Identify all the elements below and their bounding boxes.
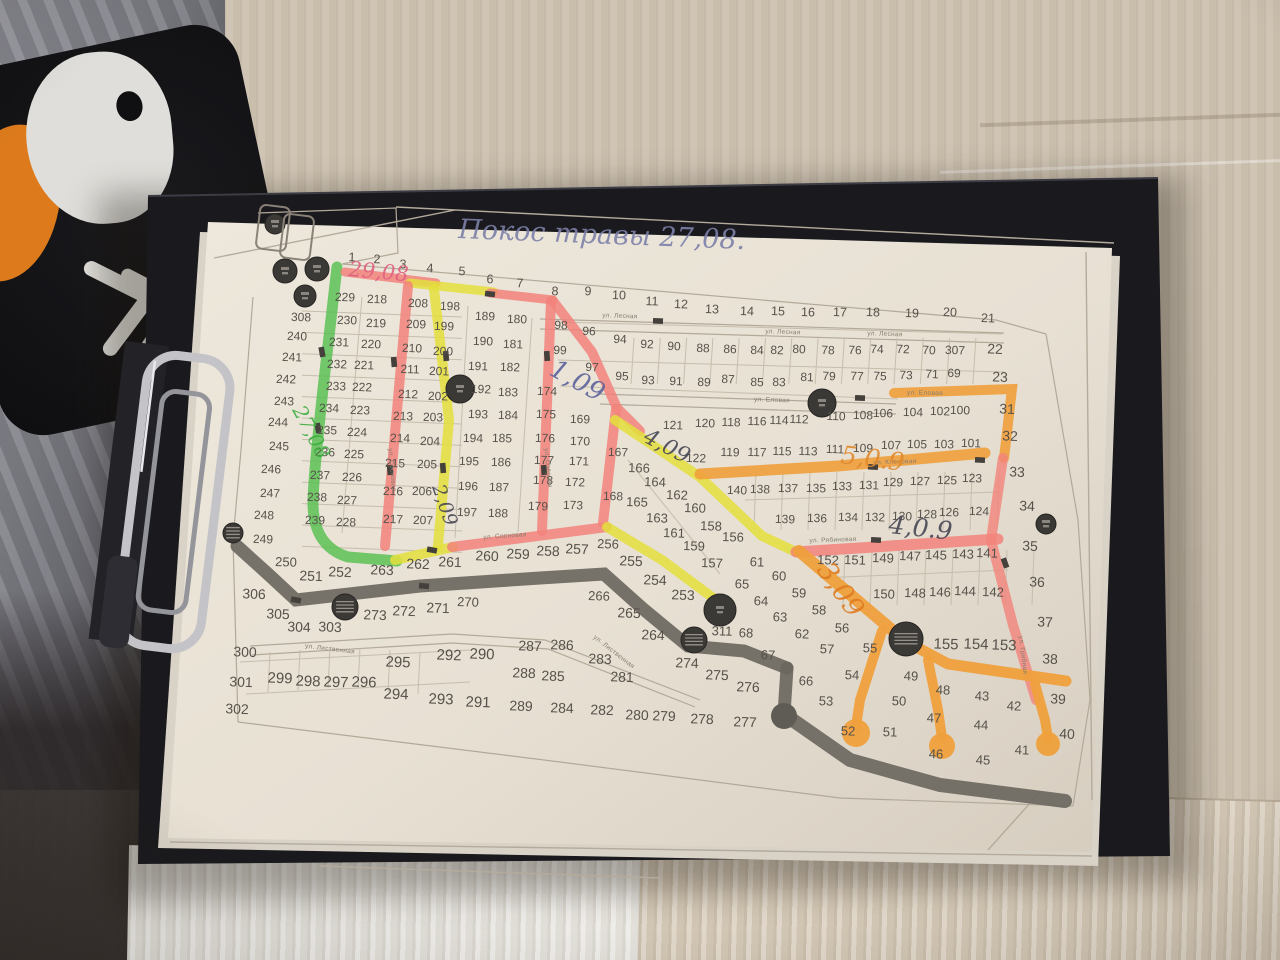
plot-number-202: 202: [428, 389, 449, 404]
plot-number-60: 60: [772, 568, 787, 583]
plot-number-161: 161: [663, 525, 685, 541]
plot-number-54: 54: [845, 667, 860, 682]
plot-number-159: 159: [683, 538, 705, 554]
plot-number-200: 200: [433, 344, 454, 359]
edge-number-38: 38: [1042, 650, 1058, 667]
plot-number-306: 306: [242, 585, 266, 602]
plot-number-46: 46: [929, 746, 944, 761]
plot-number-194: 194: [463, 431, 484, 446]
plot-number-223: 223: [350, 403, 371, 418]
plot-number-78: 78: [821, 343, 835, 357]
plot-number-42: 42: [1007, 698, 1022, 713]
plot-number-222: 222: [352, 380, 373, 395]
plot-number-108: 108: [853, 408, 874, 423]
plot-number-131: 131: [859, 478, 880, 493]
plot-number-266: 266: [588, 588, 610, 604]
plot-number-173: 173: [563, 498, 584, 513]
plot-number-254: 254: [643, 571, 667, 588]
plot-number-100: 100: [950, 403, 971, 418]
plot-number-188: 188: [488, 506, 509, 521]
plot-number-65: 65: [735, 576, 750, 591]
edge-number-36: 36: [1029, 573, 1045, 590]
route-end-blob: [1036, 732, 1060, 756]
edge-number-40: 40: [1059, 725, 1075, 742]
plot-number-203: 203: [423, 410, 444, 425]
plot-number-155: 155: [933, 636, 959, 654]
plot-number-66: 66: [799, 673, 814, 688]
gate-mark: [975, 457, 985, 463]
plot-number-160: 160: [684, 500, 706, 516]
edge-number-7: 7: [516, 276, 523, 290]
plot-number-233: 233: [326, 379, 347, 394]
plot-number-134: 134: [838, 510, 859, 525]
gate-mark: [653, 318, 663, 324]
plot-number-239: 239: [305, 513, 326, 528]
plot-number-113: 113: [798, 444, 818, 459]
plot-number-301: 301: [229, 673, 253, 690]
plot-number-80: 80: [792, 342, 806, 356]
plot-number-308: 308: [291, 310, 312, 325]
plot-number-311: 311: [711, 623, 732, 639]
plot-number-262: 262: [406, 555, 430, 572]
utility-icon: [704, 594, 736, 626]
edge-number-16: 16: [801, 305, 815, 319]
plot-number-195: 195: [459, 454, 480, 469]
plot-number-217: 217: [383, 512, 404, 527]
gate-mark: [419, 583, 429, 589]
plot-number-87: 87: [721, 372, 735, 386]
plot-number-299: 299: [267, 670, 293, 688]
plot-number-287: 287: [518, 637, 542, 654]
plot-number-144: 144: [954, 583, 976, 599]
plot-number-282: 282: [590, 701, 614, 718]
road-junction: [771, 703, 797, 729]
plot-number-288: 288: [512, 664, 536, 681]
plot-number-265: 265: [617, 604, 641, 621]
plot-number-59: 59: [792, 585, 807, 600]
plot-number-219: 219: [366, 316, 387, 331]
plot-number-120: 120: [695, 416, 716, 431]
edge-number-15: 15: [771, 304, 785, 318]
plot-number-286: 286: [550, 636, 574, 653]
plot-number-149: 149: [872, 550, 894, 566]
street-label: ул. Рябиновая: [809, 535, 857, 545]
plot-number-146: 146: [929, 584, 951, 600]
plot-number-117: 117: [747, 445, 767, 460]
plot-number-252: 252: [328, 563, 352, 580]
plot-number-307: 307: [945, 343, 966, 358]
edge-number-4: 4: [426, 261, 433, 275]
plot-number-241: 241: [282, 350, 303, 365]
plot-number-77: 77: [850, 369, 864, 383]
plot-number-151: 151: [844, 552, 866, 568]
plot-number-110: 110: [826, 409, 846, 424]
plot-number-103: 103: [934, 437, 955, 452]
plot-number-201: 201: [429, 364, 450, 379]
utility-icon: [273, 259, 297, 283]
plot-number-291: 291: [465, 694, 491, 712]
plot-number-170: 170: [570, 434, 591, 449]
plot-number-225: 225: [344, 447, 365, 462]
plot-number-189: 189: [475, 309, 496, 324]
street-label: ул. Лесная: [602, 312, 638, 320]
plot-number-88: 88: [696, 341, 710, 355]
plot-number-247: 247: [260, 486, 281, 501]
street-label: ул. Еловая: [754, 396, 790, 404]
clipboard-with-map: 3082402412422432442452462472482492292182…: [0, 0, 1280, 960]
plot-number-132: 132: [865, 510, 886, 525]
plot-number-74: 74: [870, 342, 884, 356]
plot-number-226: 226: [342, 470, 363, 485]
plot-number-198: 198: [440, 299, 461, 314]
edge-number-19: 19: [905, 306, 919, 320]
plot-number-305: 305: [266, 605, 290, 622]
plot-number-153: 153: [991, 637, 1017, 655]
plot-number-182: 182: [500, 360, 521, 375]
edge-number-14: 14: [740, 304, 754, 318]
plot-number-259: 259: [506, 545, 530, 562]
edge-number-5: 5: [458, 264, 465, 278]
edge-number-33: 33: [1009, 463, 1025, 480]
plot-number-228: 228: [336, 515, 357, 530]
plot-number-157: 157: [701, 555, 723, 571]
plot-number-169: 169: [570, 412, 591, 427]
plot-number-58: 58: [812, 602, 827, 617]
plot-number-127: 127: [910, 474, 931, 489]
edge-number-12: 12: [674, 297, 688, 311]
edge-number-13: 13: [705, 302, 719, 316]
plot-number-147: 147: [899, 548, 921, 564]
edge-number-34: 34: [1019, 497, 1035, 514]
plot-number-231: 231: [329, 335, 350, 350]
plot-number-136: 136: [807, 511, 828, 526]
plot-number-84: 84: [750, 343, 764, 357]
plot-number-257: 257: [565, 540, 589, 557]
plot-number-271: 271: [426, 599, 450, 616]
plot-number-275: 275: [705, 666, 729, 683]
plot-number-76: 76: [848, 343, 862, 357]
plot-number-165: 165: [626, 494, 648, 510]
utility-icon: [446, 375, 474, 403]
street-label: ул. Лесная: [765, 328, 801, 336]
plot-number-138: 138: [750, 482, 771, 497]
plot-number-292: 292: [436, 647, 462, 665]
plot-number-243: 243: [274, 394, 295, 409]
well-icon: [681, 627, 707, 653]
edge-number-31: 31: [999, 400, 1015, 417]
plot-number-277: 277: [733, 713, 757, 730]
plot-number-106: 106: [873, 406, 894, 421]
plot-number-101: 101: [961, 436, 982, 451]
gate-mark: [871, 537, 881, 543]
plot-number-105: 105: [907, 437, 928, 452]
plot-number-285: 285: [541, 667, 565, 684]
plot-number-221: 221: [354, 358, 375, 373]
plot-number-179: 179: [528, 499, 549, 514]
edge-number-23: 23: [992, 368, 1008, 385]
plot-number-207: 207: [413, 513, 434, 528]
plot-number-187: 187: [489, 480, 510, 495]
plot-number-264: 264: [641, 626, 665, 643]
plot-number-53: 53: [819, 693, 834, 708]
plot-number-279: 279: [652, 707, 676, 724]
plot-number-220: 220: [361, 337, 382, 352]
plot-number-102: 102: [930, 404, 951, 419]
plot-number-142: 142: [982, 584, 1004, 600]
plot-number-256: 256: [597, 536, 619, 552]
plot-number-56: 56: [835, 620, 850, 635]
plot-number-185: 185: [492, 431, 513, 446]
plot-number-141: 141: [976, 545, 998, 561]
plot-number-73: 73: [899, 368, 913, 382]
plot-number-175: 175: [536, 407, 557, 422]
plot-number-90: 90: [667, 339, 681, 353]
plot-number-163: 163: [646, 510, 668, 526]
plot-number-210: 210: [402, 341, 423, 356]
plot-number-276: 276: [736, 678, 760, 695]
plot-number-86: 86: [723, 342, 737, 356]
plot-number-92: 92: [640, 337, 654, 351]
plot-number-93: 93: [641, 373, 655, 387]
edge-number-20: 20: [943, 305, 957, 319]
gate-mark: [485, 291, 496, 298]
plot-number-95: 95: [615, 369, 629, 383]
plot-number-240: 240: [287, 329, 308, 344]
plot-number-230: 230: [337, 313, 358, 328]
plot-number-115: 115: [772, 444, 792, 459]
plot-number-172: 172: [565, 475, 586, 490]
edge-number-22: 22: [987, 340, 1003, 357]
plot-number-196: 196: [458, 479, 479, 494]
plot-number-244: 244: [268, 415, 289, 430]
plot-number-300: 300: [233, 643, 257, 660]
plot-number-145: 145: [925, 547, 947, 563]
plot-number-121: 121: [663, 418, 684, 433]
plot-number-227: 227: [337, 493, 358, 508]
plot-number-47: 47: [927, 710, 942, 725]
well-icon: [889, 622, 923, 656]
plot-number-237: 237: [310, 468, 331, 483]
plot-number-278: 278: [690, 710, 714, 727]
edge-number-9: 9: [584, 284, 591, 298]
plot-number-123: 123: [962, 471, 983, 486]
plot-number-150: 150: [873, 586, 895, 602]
plot-number-139: 139: [775, 512, 796, 527]
plot-number-280: 280: [625, 706, 649, 723]
edge-number-11: 11: [645, 294, 659, 308]
plot-number-41: 41: [1015, 742, 1030, 757]
plot-number-174: 174: [537, 384, 558, 399]
utility-icon: [294, 285, 316, 307]
plot-number-212: 212: [398, 387, 419, 402]
plot-number-168: 168: [603, 489, 624, 504]
gate-mark: [855, 395, 865, 401]
edge-number-39: 39: [1050, 690, 1066, 707]
plot-number-283: 283: [588, 650, 612, 667]
plot-number-148: 148: [904, 585, 926, 601]
plot-number-82: 82: [770, 343, 784, 357]
plot-number-290: 290: [469, 646, 495, 664]
plot-number-143: 143: [952, 546, 974, 562]
plot-number-248: 248: [254, 508, 275, 523]
photo-scene: 3082402412422432442452462472482492292182…: [0, 0, 1280, 960]
plot-number-116: 116: [747, 414, 767, 429]
plot-number-298: 298: [295, 673, 321, 691]
plot-number-114: 114: [769, 413, 789, 428]
plot-number-253: 253: [671, 586, 695, 603]
plot-number-48: 48: [936, 682, 951, 697]
plot-number-79: 79: [822, 369, 836, 383]
plot-number-245: 245: [269, 439, 290, 454]
plot-number-158: 158: [700, 518, 722, 534]
edge-number-21: 21: [981, 311, 995, 325]
plot-number-224: 224: [347, 425, 368, 440]
plot-number-303: 303: [318, 618, 342, 635]
edge-number-10: 10: [612, 288, 626, 302]
plot-number-208: 208: [408, 296, 429, 311]
plot-number-171: 171: [569, 454, 590, 469]
plot-number-261: 261: [438, 553, 462, 570]
edge-number-32: 32: [1002, 427, 1018, 444]
plot-number-118: 118: [721, 415, 741, 430]
plot-number-125: 125: [937, 473, 958, 488]
plot-number-71: 71: [925, 367, 939, 381]
plot-number-214: 214: [390, 431, 411, 446]
plot-number-57: 57: [820, 641, 835, 656]
plot-number-293: 293: [428, 691, 454, 709]
gate-mark: [544, 351, 550, 361]
plot-number-51: 51: [883, 724, 898, 739]
plot-number-295: 295: [385, 654, 411, 672]
edge-number-8: 8: [551, 284, 558, 298]
plot-number-167: 167: [608, 445, 629, 460]
plot-number-232: 232: [327, 357, 348, 372]
plot-number-246: 246: [261, 462, 282, 477]
utility-icon: [1036, 514, 1056, 534]
plot-number-184: 184: [498, 408, 519, 423]
plot-number-294: 294: [383, 686, 409, 704]
gate-mark: [391, 357, 397, 367]
plot-number-94: 94: [613, 332, 627, 346]
plot-number-91: 91: [669, 374, 683, 388]
plot-number-140: 140: [727, 483, 748, 498]
plot-number-85: 85: [750, 375, 764, 389]
edge-number-35: 35: [1022, 537, 1038, 554]
plot-number-302: 302: [225, 700, 249, 717]
plot-number-62: 62: [795, 626, 810, 641]
plot-number-238: 238: [307, 490, 328, 505]
plot-number-281: 281: [610, 668, 634, 685]
plot-number-52: 52: [841, 723, 856, 738]
plot-number-205: 205: [417, 457, 438, 472]
plot-number-64: 64: [754, 593, 769, 608]
plot-number-69: 69: [947, 366, 961, 380]
edge-number-17: 17: [833, 305, 847, 319]
plot-number-242: 242: [276, 372, 297, 387]
plot-number-304: 304: [287, 618, 311, 635]
plot-number-181: 181: [503, 337, 524, 352]
plot-number-193: 193: [468, 407, 489, 422]
plot-number-45: 45: [976, 752, 991, 767]
plot-number-289: 289: [509, 697, 533, 714]
well-icon: [223, 523, 243, 543]
plot-number-249: 249: [253, 532, 274, 547]
plot-number-260: 260: [475, 547, 499, 564]
plot-number-119: 119: [720, 445, 740, 460]
plot-number-211: 211: [400, 362, 420, 377]
plot-number-63: 63: [773, 609, 788, 624]
edge-number-6: 6: [486, 272, 493, 286]
plot-number-176: 176: [535, 431, 556, 446]
plot-number-55: 55: [863, 640, 878, 655]
plot-number-96: 96: [582, 324, 596, 338]
well-icon: [332, 594, 358, 620]
plot-number-183: 183: [498, 385, 519, 400]
plot-number-229: 229: [335, 290, 356, 305]
plot-number-129: 129: [883, 475, 904, 490]
plot-number-89: 89: [697, 375, 711, 389]
plot-number-72: 72: [896, 342, 910, 356]
plot-number-263: 263: [370, 561, 394, 578]
plot-number-186: 186: [491, 455, 512, 470]
gate-mark: [440, 463, 446, 473]
plot-number-68: 68: [739, 625, 754, 640]
plot-number-133: 133: [832, 479, 853, 494]
plot-number-124: 124: [969, 504, 990, 519]
plot-number-70: 70: [922, 343, 936, 357]
plot-number-83: 83: [772, 375, 786, 389]
plot-number-199: 199: [434, 319, 455, 334]
plot-number-284: 284: [550, 699, 574, 716]
plot-number-67: 67: [761, 647, 776, 662]
plot-number-190: 190: [473, 334, 494, 349]
edge-number-37: 37: [1037, 613, 1053, 630]
plot-number-75: 75: [873, 369, 887, 383]
plot-number-98: 98: [554, 318, 568, 332]
plot-number-204: 204: [420, 434, 441, 449]
plot-number-44: 44: [974, 717, 989, 732]
plot-number-154: 154: [963, 636, 989, 654]
plot-number-270: 270: [457, 594, 479, 610]
plot-number-274: 274: [675, 654, 699, 671]
plot-number-61: 61: [750, 554, 765, 569]
plot-number-50: 50: [892, 693, 907, 708]
street-label: ул. Еловая: [907, 389, 943, 397]
street-label: ул. Лесная: [867, 330, 903, 338]
plot-number-296: 296: [351, 674, 377, 692]
edge-number-18: 18: [866, 305, 880, 319]
plot-number-255: 255: [619, 552, 643, 569]
plot-number-180: 180: [507, 312, 528, 327]
plot-number-156: 156: [722, 529, 744, 545]
plot-number-43: 43: [975, 688, 990, 703]
utility-icon: [305, 257, 329, 281]
plot-number-297: 297: [323, 674, 349, 692]
plot-number-49: 49: [904, 668, 919, 683]
plot-number-209: 209: [406, 317, 427, 332]
plot-number-81: 81: [800, 370, 814, 384]
plot-number-250: 250: [275, 554, 297, 570]
plot-number-192: 192: [471, 382, 492, 397]
plot-number-234: 234: [319, 401, 340, 416]
plot-number-258: 258: [536, 542, 560, 559]
plot-number-251: 251: [299, 567, 323, 584]
plot-number-213: 213: [393, 409, 414, 424]
plot-number-104: 104: [903, 405, 924, 420]
plot-number-272: 272: [392, 602, 416, 619]
plot-number-164: 164: [644, 474, 666, 490]
plot-number-191: 191: [468, 359, 489, 374]
